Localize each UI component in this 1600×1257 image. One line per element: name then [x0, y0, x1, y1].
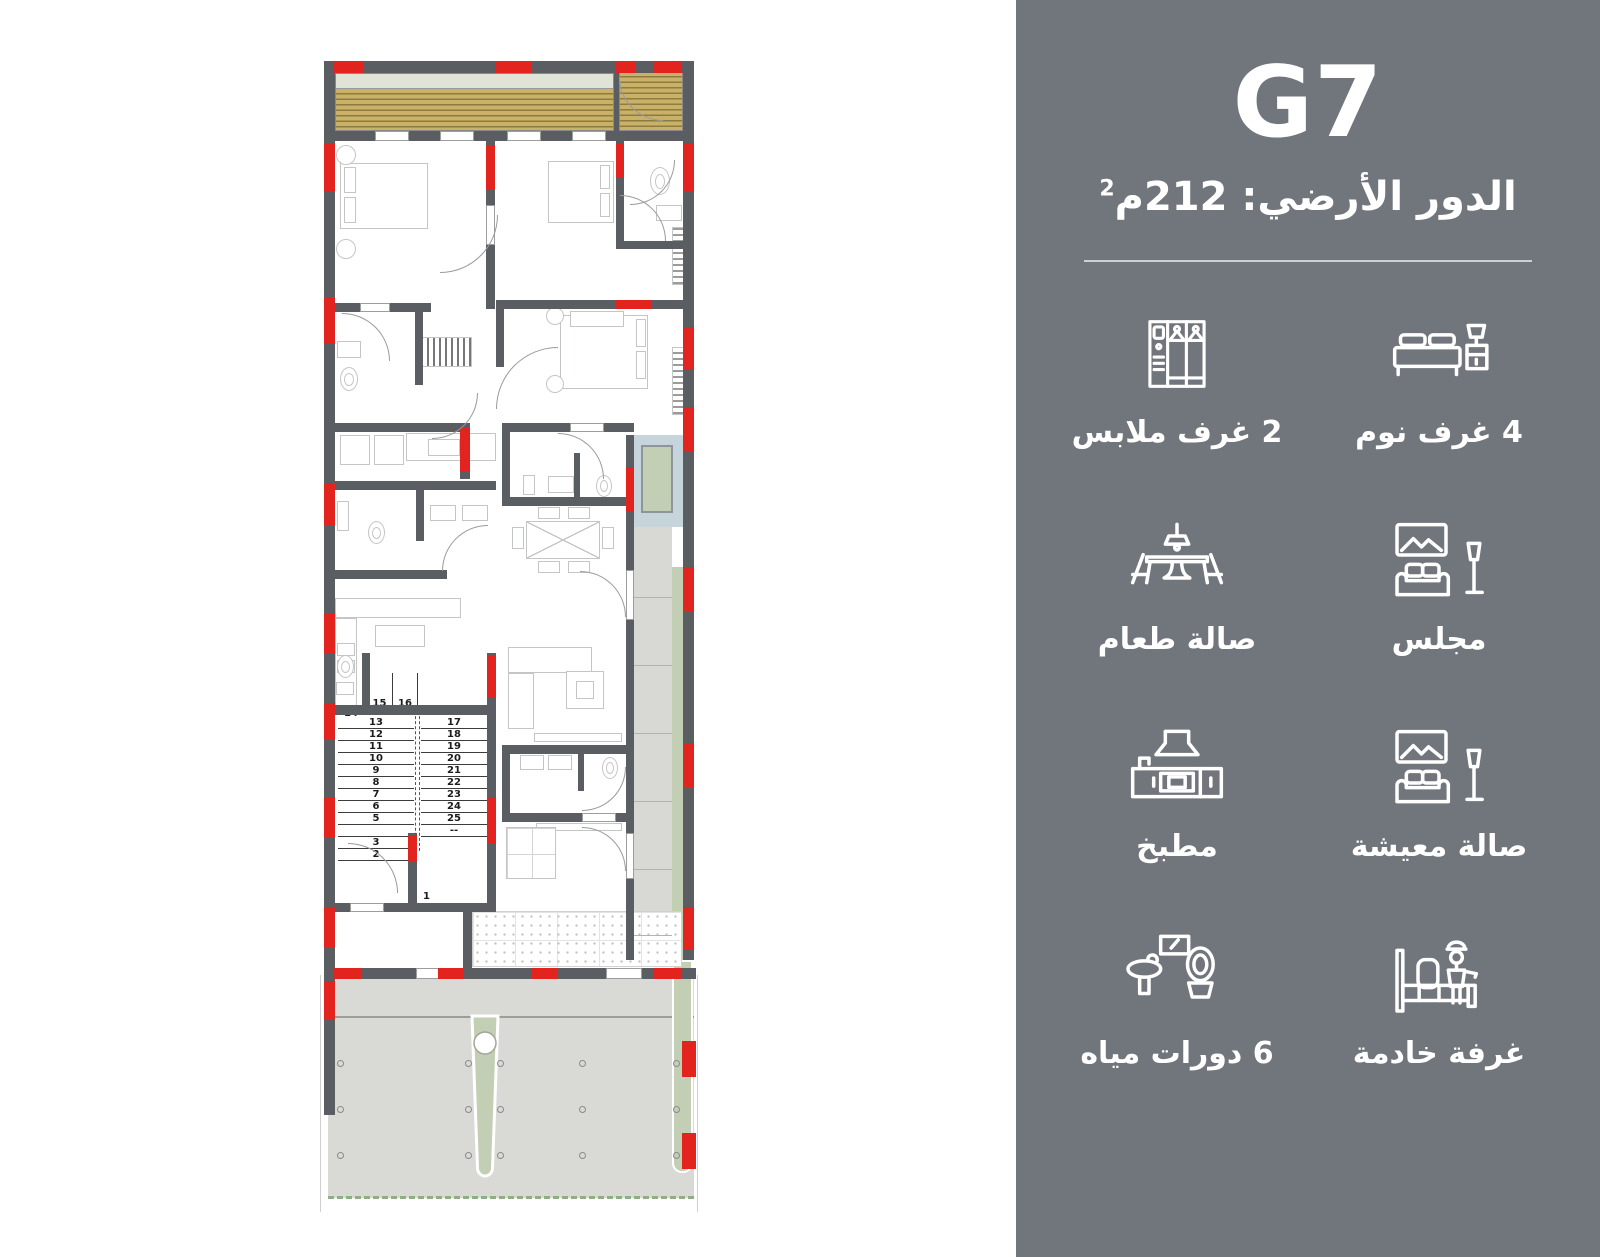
window-opening — [606, 968, 642, 979]
red-column-marker — [616, 143, 624, 177]
yard-dot — [337, 1152, 344, 1159]
walkway-line — [634, 801, 672, 802]
red-column-marker — [616, 61, 636, 73]
red-column-marker — [333, 968, 361, 979]
red-column-marker — [683, 743, 694, 787]
red-column-marker — [324, 907, 335, 947]
feature-label: مجلس — [1392, 622, 1487, 657]
red-column-marker — [626, 467, 634, 511]
majlis-sofa-icon — [1383, 504, 1495, 608]
window-opening — [440, 131, 474, 141]
feature-label: صالة معيشة — [1351, 829, 1528, 864]
red-column-marker — [333, 61, 363, 73]
walkway-line — [634, 733, 672, 734]
red-column-marker — [531, 968, 557, 979]
sink — [336, 682, 354, 695]
feature-majlis-sofa: مجلس — [1308, 477, 1570, 684]
chair — [538, 507, 560, 519]
red-column-marker — [683, 407, 694, 451]
yard-dot — [579, 1152, 586, 1159]
shelf — [523, 475, 535, 495]
red-column-marker — [438, 968, 464, 979]
wall — [616, 241, 694, 249]
wall — [626, 435, 634, 960]
wall — [463, 903, 472, 968]
yard-dot — [579, 1060, 586, 1067]
yard-dot — [673, 1106, 680, 1113]
features-grid: 4 غرف نوم2 غرف ملابسمجلسصالة طعامصالة مع… — [1016, 262, 1600, 1098]
yard-dot — [579, 1106, 586, 1113]
dining-table-icon — [1121, 504, 1233, 608]
sink — [428, 439, 460, 456]
feature-wardrobe: 2 غرف ملابس — [1046, 270, 1308, 477]
door-arc — [558, 433, 604, 479]
chair — [602, 527, 614, 549]
red-column-marker — [324, 797, 335, 837]
yard-dot — [673, 1152, 680, 1159]
feature-label: صالة طعام — [1098, 622, 1257, 657]
door-arc — [442, 525, 488, 571]
toilet-bowl — [372, 527, 381, 539]
window-opening — [582, 813, 616, 822]
area-value: 212 — [1144, 174, 1228, 220]
red-column-marker — [408, 835, 417, 861]
chair — [538, 561, 560, 573]
door-arc — [342, 313, 390, 361]
door-arc — [582, 767, 626, 811]
red-column-marker — [683, 327, 694, 369]
yard-dot — [337, 1060, 344, 1067]
chair — [512, 527, 524, 549]
red-column-marker — [682, 1133, 696, 1169]
shower-panel — [337, 501, 349, 531]
nightstand-lamp — [546, 307, 564, 325]
feature-maid-room: غرفة خادمة — [1308, 891, 1570, 1098]
nightstand-lamp — [336, 239, 356, 259]
toilet-bowl — [600, 480, 608, 492]
nightstand-lamp — [336, 145, 356, 165]
window-opening — [375, 131, 409, 141]
wall — [502, 745, 634, 754]
feature-bathroom: 6 دورات مياه — [1046, 891, 1308, 1098]
yard-dot — [465, 1060, 472, 1067]
door-arc — [619, 77, 663, 121]
red-column-marker — [324, 298, 335, 344]
yard-dot — [497, 1106, 504, 1113]
chair — [568, 507, 590, 519]
walkway-line — [634, 935, 672, 936]
red-column-marker — [653, 968, 681, 979]
pillow — [636, 351, 646, 379]
bathroom-icon — [1121, 918, 1233, 1022]
red-column-marker — [324, 703, 335, 739]
appliance — [374, 435, 404, 465]
floor-plan: 14 1516 131211109876532 1718192021222324… — [320, 55, 698, 1205]
wall — [335, 570, 447, 579]
sofa — [508, 647, 592, 673]
wall — [416, 489, 424, 541]
door-arc — [580, 571, 626, 617]
door-arc — [582, 827, 626, 871]
porch-cabinet — [506, 827, 556, 879]
window-opening — [350, 903, 384, 912]
toilet-bowl — [344, 373, 354, 386]
walkway-line — [634, 869, 672, 870]
wall — [335, 705, 496, 715]
red-column-marker — [460, 427, 470, 471]
tv-console — [534, 733, 622, 742]
info-panel: G7 الدور الأرضي: 212م2 4 غرف نوم2 غرف مل… — [1016, 0, 1600, 1257]
kitchen-icon — [1121, 711, 1233, 815]
feature-dining-table: صالة طعام — [1046, 477, 1308, 684]
sofa — [508, 673, 534, 729]
feature-label: 6 دورات مياه — [1080, 1036, 1273, 1071]
maid-room-icon — [1383, 918, 1495, 1022]
feature-label: 4 غرف نوم — [1355, 415, 1523, 450]
walkway-line — [634, 597, 672, 598]
floor-plan-sheet: { "panel": { "unit": "G7", "floor_label"… — [0, 0, 1600, 1257]
door-arc — [348, 843, 398, 893]
red-column-marker — [486, 145, 495, 189]
window-opening — [360, 303, 390, 312]
loveseat — [375, 625, 425, 647]
red-column-marker — [683, 567, 694, 611]
yard-dot — [465, 1152, 472, 1159]
door-arc — [496, 347, 558, 409]
red-column-marker — [682, 1041, 696, 1077]
pillow — [344, 197, 356, 223]
yard-dot — [497, 1060, 504, 1067]
red-column-marker — [683, 907, 694, 949]
red-column-marker — [324, 981, 335, 1019]
area-unit: م — [1115, 174, 1144, 220]
red-column-marker — [616, 300, 652, 309]
dining-table — [526, 521, 600, 559]
pillow — [344, 167, 356, 193]
living-sofa-icon — [1383, 711, 1495, 815]
pillow — [600, 193, 610, 217]
window-opening — [572, 131, 606, 141]
wall — [502, 423, 634, 432]
yard-dot — [673, 1060, 680, 1067]
plan-generated-layers — [320, 55, 698, 1205]
red-column-marker — [653, 61, 681, 73]
pillow — [636, 319, 646, 347]
wall — [362, 653, 370, 708]
feature-label: غرفة خادمة — [1353, 1036, 1526, 1071]
wardrobe-icon — [1127, 297, 1227, 401]
wall — [324, 61, 335, 1115]
wall — [502, 423, 510, 506]
sink — [520, 755, 544, 770]
yard-dot — [465, 1106, 472, 1113]
sink — [548, 755, 572, 770]
feature-bed: 4 غرف نوم — [1308, 270, 1570, 477]
floor-area-subtitle: الدور الأرضي: 212م2 — [1016, 174, 1600, 220]
kitchen-counter — [335, 598, 461, 618]
door-arc — [630, 160, 675, 205]
wardrobe-hangers — [420, 337, 472, 367]
feature-living-sofa: صالة معيشة — [1308, 684, 1570, 891]
window-opening — [507, 131, 541, 141]
coffee-table-inner — [576, 681, 594, 699]
floor-label: الدور الأرضي: — [1241, 174, 1516, 220]
red-column-marker — [487, 655, 496, 697]
sink — [462, 505, 488, 521]
window-opening — [570, 423, 604, 432]
wall — [496, 300, 694, 309]
feature-label: مطبخ — [1136, 829, 1218, 864]
wall — [502, 745, 510, 822]
window-opening — [626, 570, 634, 620]
window-opening — [626, 833, 634, 879]
walkway-line — [634, 665, 672, 666]
feature-label: 2 غرف ملابس — [1072, 415, 1283, 450]
wall — [415, 312, 423, 385]
red-column-marker — [324, 613, 335, 653]
red-column-marker — [487, 797, 496, 843]
bed-icon — [1383, 297, 1495, 401]
feature-kitchen: مطبخ — [1046, 684, 1308, 891]
area-sup: 2 — [1099, 177, 1114, 202]
appliance — [340, 435, 370, 465]
yard-dot — [337, 1106, 344, 1113]
toilet-bowl — [341, 661, 350, 673]
red-column-marker — [683, 143, 694, 191]
yard-dot — [497, 1152, 504, 1159]
unit-title: G7 — [1016, 46, 1600, 160]
sink — [430, 505, 456, 521]
closet — [570, 311, 624, 327]
wall — [502, 497, 634, 506]
red-column-marker — [495, 61, 531, 73]
wall — [683, 61, 694, 960]
wall — [496, 309, 504, 367]
red-column-marker — [324, 143, 335, 191]
red-column-marker — [324, 483, 335, 525]
pillow — [600, 165, 610, 189]
